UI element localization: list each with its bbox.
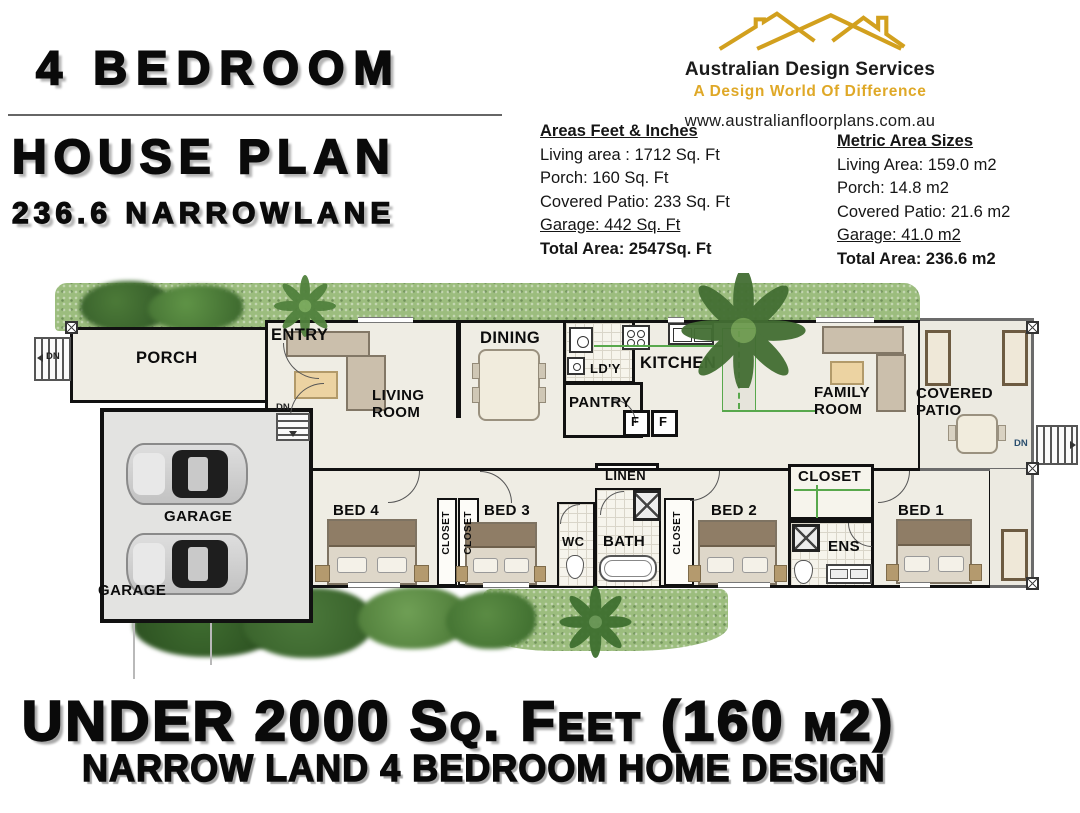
porch-dn-label: DN (46, 351, 60, 362)
label-closet-walkin: CLOSET (798, 469, 861, 486)
coffee-table (830, 361, 864, 385)
footer-headline: UNDER 2000 Sq. Feet (160 m2) (22, 688, 895, 753)
patio-post (1028, 323, 1037, 332)
shower (792, 524, 820, 552)
window (718, 582, 770, 588)
label-bed3: BED 3 (484, 503, 530, 520)
living-dining-wall (456, 322, 461, 418)
bed (465, 522, 537, 585)
label-living-room: LIVING ROOM (372, 388, 424, 422)
closet-rail (794, 489, 870, 491)
areas-metric-heading: Metric Area Sizes (837, 130, 1080, 154)
garage-dn-label: DN (276, 402, 290, 413)
patio-table (956, 414, 998, 454)
area-line: Garage: 41.0 m2 (837, 224, 1080, 248)
areas-imperial: Areas Feet & Inches Living area : 1712 S… (540, 120, 825, 261)
bathtub (599, 555, 657, 582)
area-line: Covered Patio: 21.6 m2 (837, 201, 1080, 225)
label-garage: GARAGE (164, 509, 232, 526)
patio-post (1028, 579, 1037, 588)
areas-imperial-total: Total Area: 2547Sq. Ft (540, 238, 825, 262)
label-bed1: BED 1 (898, 503, 944, 520)
brand-name: Australian Design Services (665, 59, 955, 81)
dining-chair (472, 387, 480, 403)
dining-chair (538, 363, 546, 379)
window (816, 317, 874, 323)
label-porch: PORCH (136, 349, 198, 367)
porch-post (65, 321, 78, 334)
label-dining: DINING (480, 329, 540, 347)
label-pantry: PANTRY (569, 395, 631, 412)
label-entry: ENTRY (271, 326, 328, 344)
post-x (67, 323, 76, 332)
window (348, 582, 400, 588)
car (126, 443, 248, 505)
patio-chair (998, 425, 1006, 441)
driveway-line (210, 623, 212, 665)
label-fridge: F (659, 415, 667, 430)
label-family-room: FAMILY ROOM (814, 385, 870, 419)
dining-chair (538, 387, 546, 403)
title-divider (8, 114, 502, 116)
page-title-line3: 236.6 NARROWLANE (12, 197, 395, 231)
bench-line (722, 410, 816, 412)
areas-metric: Metric Area Sizes Living Area: 159.0 m2 … (837, 130, 1080, 271)
label-laundry: LD'Y (590, 362, 621, 377)
bed (698, 520, 777, 585)
stairs-arrow (37, 354, 43, 362)
palm-tree (676, 273, 811, 388)
page-title-line2: HOUSE PLAN (12, 130, 397, 185)
bed (327, 519, 417, 585)
label-wc: WC (562, 535, 584, 550)
label-bed2: BED 2 (711, 503, 757, 520)
stairs-arrow (289, 431, 297, 437)
label-garage-2: GARAGE (98, 583, 166, 600)
washing-machine (569, 327, 593, 353)
tree (148, 285, 243, 331)
floor-plan: PORCH DN ENTRY LIVING ROOM DINING LD'Y P… (28, 283, 1080, 675)
area-line: Covered Patio: 233 Sq. Ft (540, 191, 825, 215)
areas-metric-total: Total Area: 236.6 m2 (837, 248, 1080, 272)
area-line: Porch: 160 Sq. Ft (540, 167, 825, 191)
label-closet: CLOSET (441, 511, 452, 555)
area-line: Porch: 14.8 m2 (837, 177, 1080, 201)
window (900, 582, 930, 588)
label-bath: BATH (603, 534, 645, 551)
outdoor-lounge (925, 330, 951, 386)
label-covered-patio: COVERED PATIO (916, 386, 993, 420)
window (358, 317, 413, 323)
area-line: Living Area: 159.0 m2 (837, 154, 1080, 178)
area-line: Garage: 442 Sq. Ft (540, 214, 825, 238)
tree (446, 591, 536, 649)
area-line: Living area : 1712 Sq. Ft (540, 144, 825, 168)
areas-imperial-heading: Areas Feet & Inches (540, 120, 825, 144)
page-title-line1: 4 BEDROOM (36, 40, 402, 95)
outdoor-lounge (1001, 529, 1028, 581)
driveway-line (133, 623, 135, 679)
patio-post (1028, 464, 1037, 473)
patio-dn-label: DN (1014, 438, 1028, 449)
footer-subheadline: NARROW LAND 4 BEDROOM HOME DESIGN (82, 748, 886, 791)
label-closet: CLOSET (672, 511, 683, 555)
label-bed4: BED 4 (333, 503, 379, 520)
label-closet: CLOSET (463, 511, 474, 555)
laundry-tub (567, 357, 585, 375)
window (483, 582, 529, 588)
palm-tree (548, 586, 643, 658)
bed (896, 519, 972, 584)
brand-block: Australian Design Services A Design Worl… (665, 6, 955, 131)
brand-tagline: A Design World Of Difference (665, 83, 955, 101)
label-linen: LINEN (605, 469, 646, 484)
stairs-arrow (1070, 441, 1076, 449)
outdoor-lounge (1002, 330, 1028, 386)
sofa (876, 354, 906, 412)
dining-table (478, 349, 540, 421)
patio-chair (948, 425, 956, 441)
label-ens: ENS (828, 539, 860, 556)
vanity (826, 564, 872, 584)
shower (633, 490, 661, 521)
dining-chair (472, 363, 480, 379)
sofa (822, 326, 904, 354)
roofline-logo-icon (710, 6, 910, 54)
label-fridge: F (631, 415, 639, 430)
